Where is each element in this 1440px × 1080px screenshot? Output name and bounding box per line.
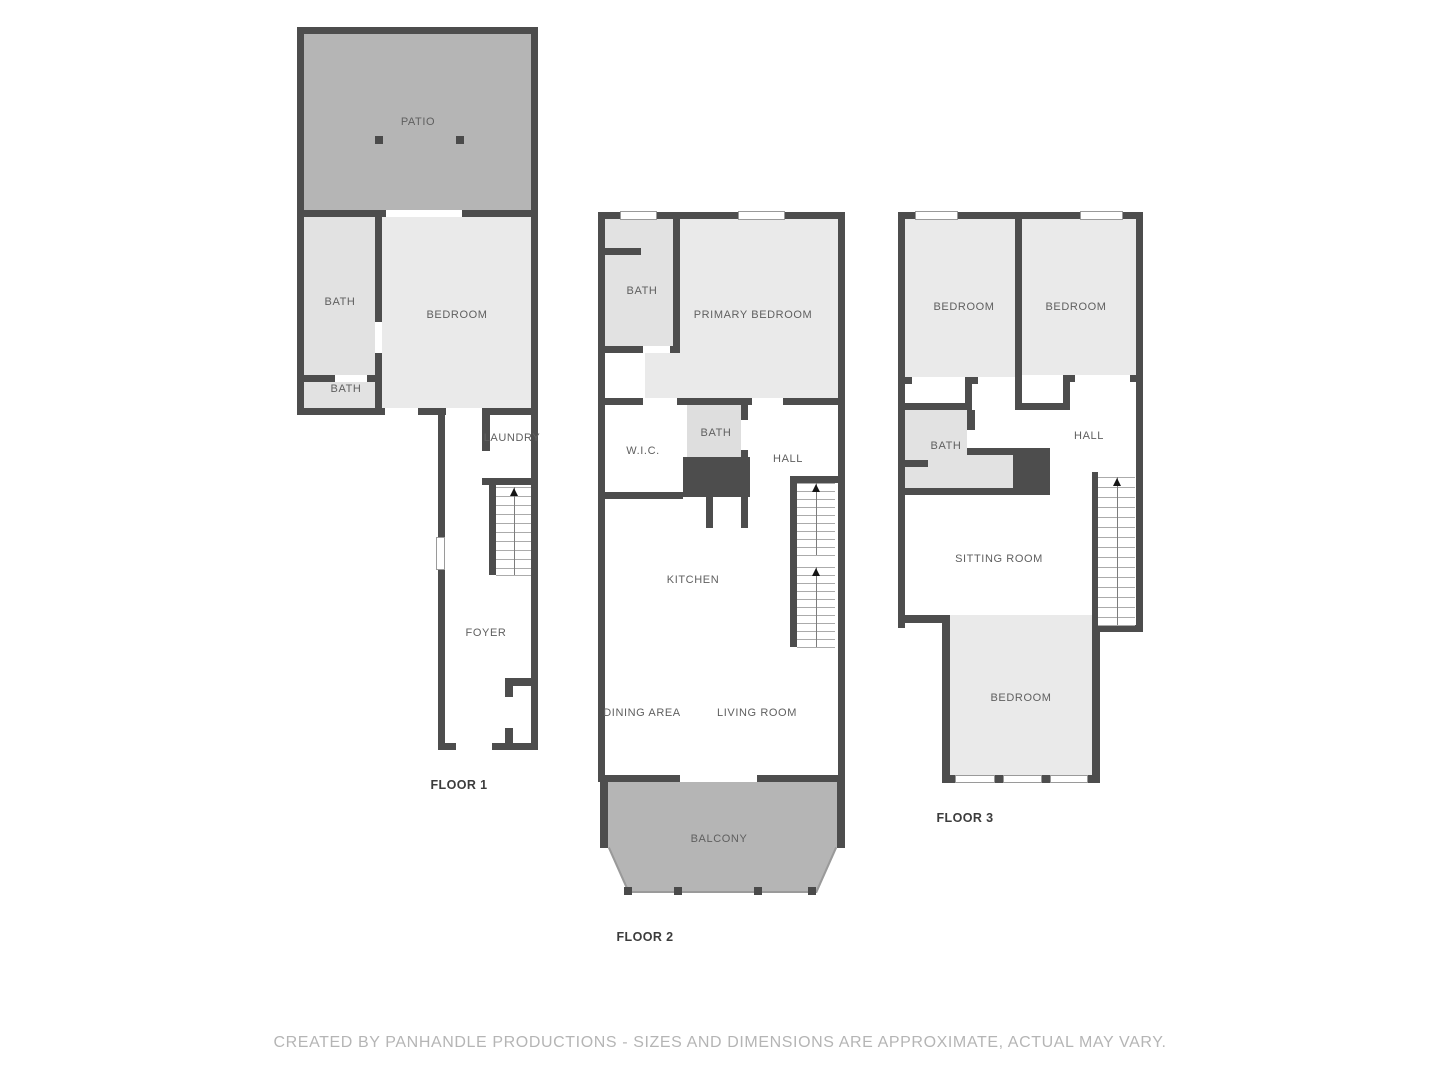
room-label-bedroom-right: BEDROOM bbox=[1045, 301, 1106, 313]
wall bbox=[1092, 625, 1143, 632]
floor3-plan: BEDROOM BEDROOM BATH HALL SITTING ROOM B… bbox=[0, 0, 1440, 1080]
wall bbox=[1092, 632, 1100, 783]
wall bbox=[967, 410, 975, 430]
wall bbox=[942, 615, 950, 783]
wall bbox=[1015, 219, 1022, 410]
wall bbox=[898, 212, 905, 628]
bath-fill bbox=[967, 455, 1013, 488]
window bbox=[1003, 775, 1042, 783]
room-label-hall: HALL bbox=[1074, 430, 1104, 442]
room-label-bedroom-lower: BEDROOM bbox=[990, 692, 1051, 704]
footer-disclaimer: CREATED BY PANHANDLE PRODUCTIONS - SIZES… bbox=[273, 1034, 1166, 1052]
window bbox=[955, 775, 995, 783]
wall bbox=[995, 775, 1003, 783]
staircase-floor3 bbox=[1098, 477, 1135, 626]
wall bbox=[1063, 375, 1075, 382]
wall bbox=[967, 448, 1013, 455]
wall bbox=[898, 460, 928, 467]
window bbox=[915, 211, 958, 220]
wall bbox=[1088, 775, 1100, 783]
room-label-bath: BATH bbox=[931, 440, 962, 452]
floor-plan-sheet: PATIO BATH BATH BEDROOM LAUNDRY FOYER FL… bbox=[0, 0, 1440, 1080]
wall-shaft bbox=[1013, 448, 1050, 495]
wall bbox=[898, 403, 967, 410]
room-label-sitting-room: SITTING ROOM bbox=[955, 553, 1043, 565]
floor3-title: FLOOR 3 bbox=[937, 811, 994, 825]
bedroom-left-fill bbox=[905, 218, 1015, 377]
stair-up-arrow-icon bbox=[1113, 478, 1121, 486]
window bbox=[1050, 775, 1088, 783]
wall bbox=[965, 377, 978, 384]
wall bbox=[898, 377, 912, 384]
wall bbox=[942, 775, 955, 783]
wall bbox=[898, 488, 1013, 495]
wall bbox=[1015, 403, 1070, 410]
wall bbox=[1130, 375, 1136, 382]
window bbox=[1080, 211, 1123, 220]
wall bbox=[1136, 212, 1143, 632]
bedroom-right-fill bbox=[1022, 218, 1136, 375]
room-label-bedroom-left: BEDROOM bbox=[933, 301, 994, 313]
wall bbox=[1042, 775, 1050, 783]
